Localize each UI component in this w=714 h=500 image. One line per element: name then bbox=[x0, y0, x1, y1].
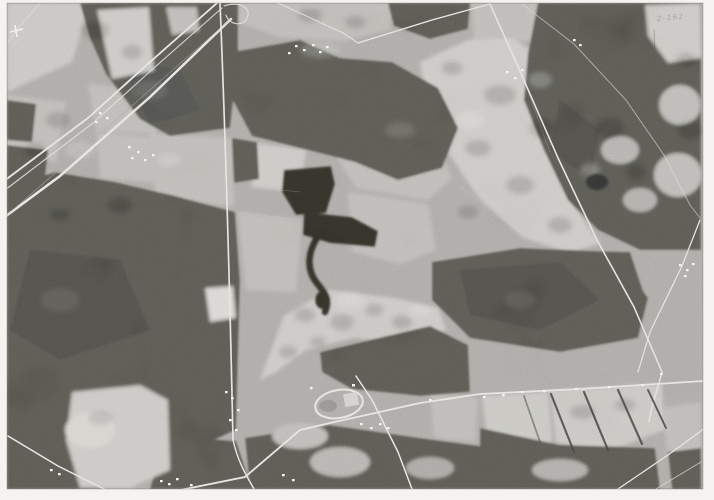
aerial-photograph: Rural landscape: woodland blocks, crop f… bbox=[0, 0, 714, 500]
film-grain-overlay bbox=[0, 0, 714, 500]
aerial-photo-frame: Rural landscape: woodland blocks, crop f… bbox=[0, 0, 714, 500]
